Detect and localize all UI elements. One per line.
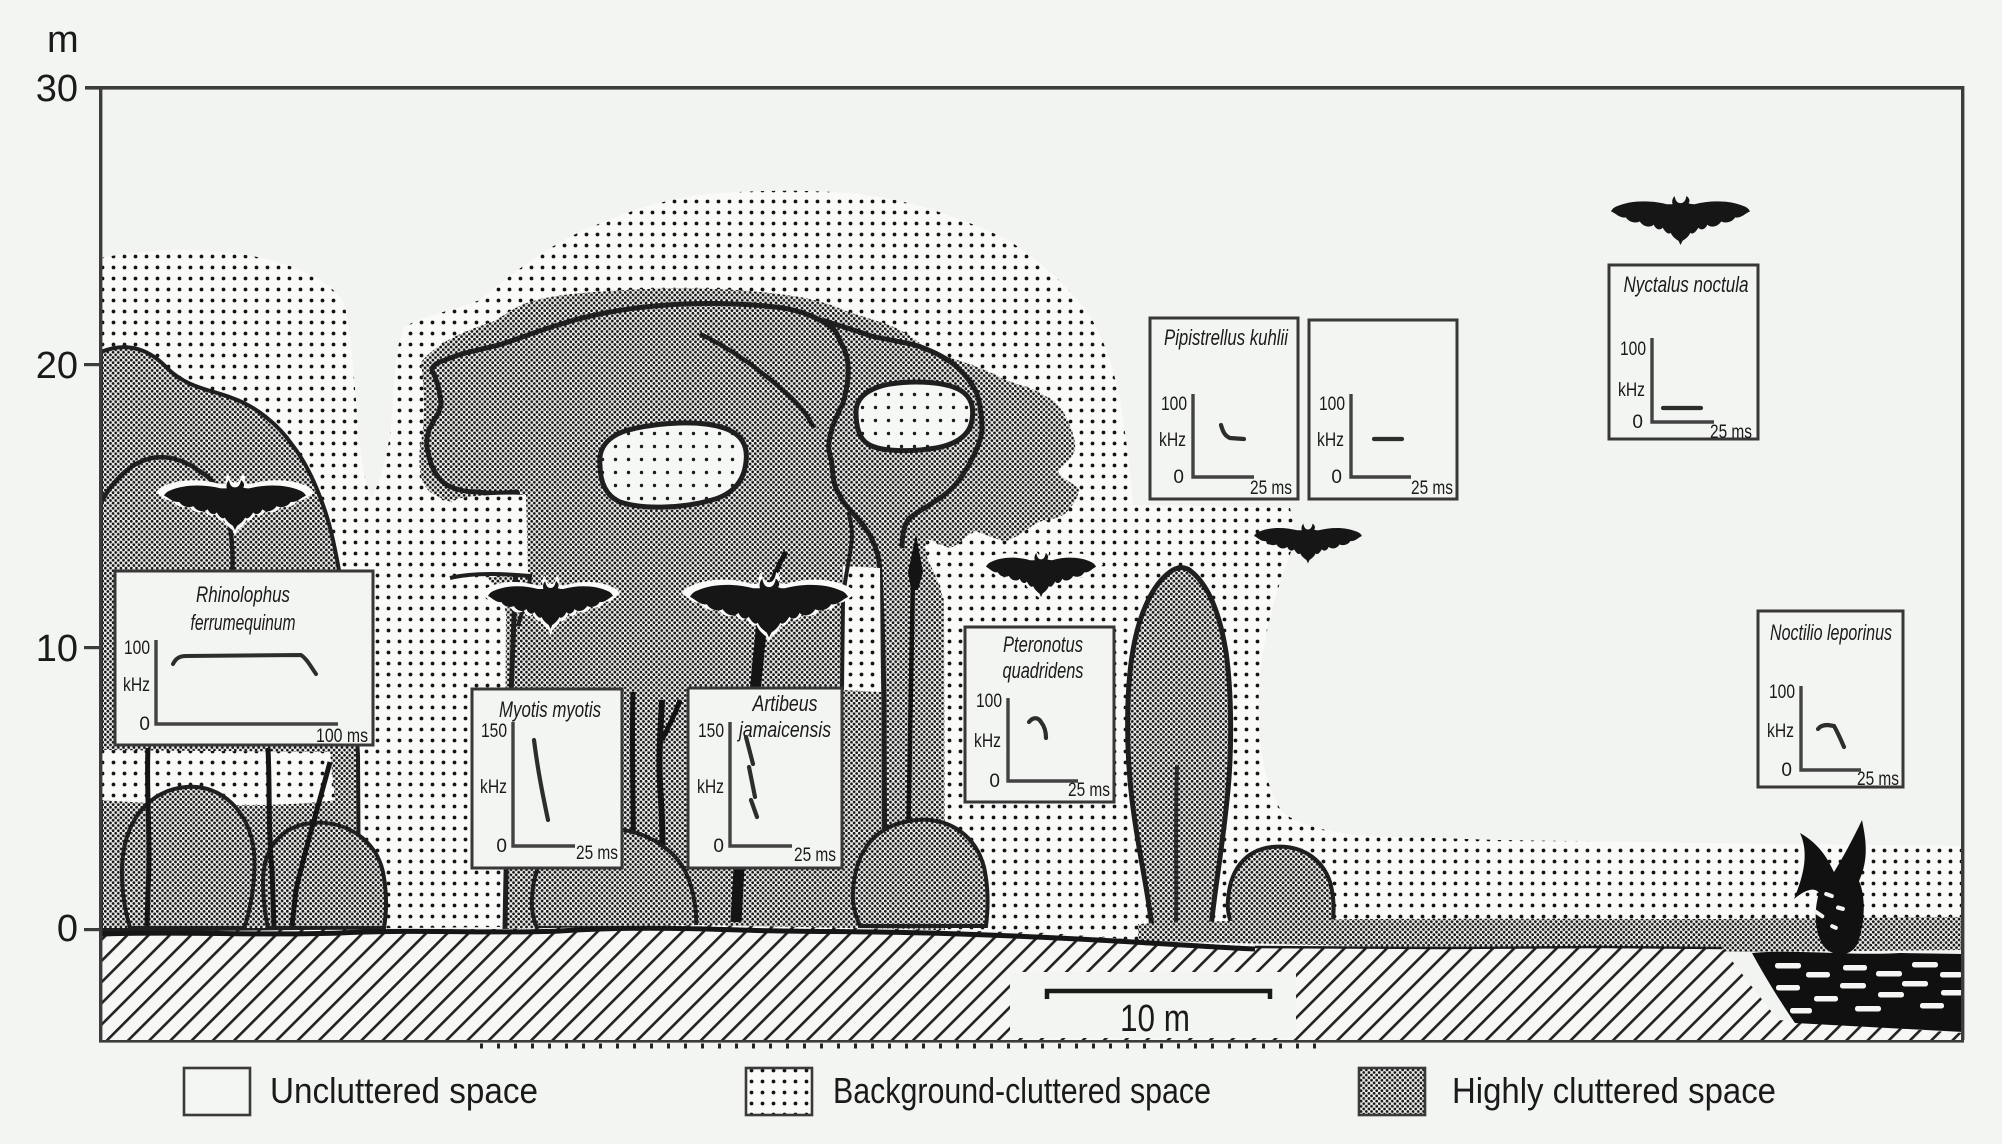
svg-text:10: 10 xyxy=(36,628,78,670)
svg-text:kHz: kHz xyxy=(697,777,724,798)
svg-text:25 ms: 25 ms xyxy=(794,845,836,866)
svg-text:25 ms: 25 ms xyxy=(1411,478,1453,499)
svg-text:100: 100 xyxy=(1161,394,1187,415)
svg-text:jamaicensis: jamaicensis xyxy=(737,717,831,742)
svg-text:kHz: kHz xyxy=(1767,721,1794,742)
svg-text:kHz: kHz xyxy=(1159,430,1186,451)
svg-text:0: 0 xyxy=(1781,760,1792,781)
svg-text:ferrumequinum: ferrumequinum xyxy=(191,610,296,635)
svg-text:100: 100 xyxy=(1769,682,1795,703)
svg-text:25 ms: 25 ms xyxy=(1250,478,1292,499)
svg-text:kHz: kHz xyxy=(123,675,150,696)
svg-text:Rhinolophus: Rhinolophus xyxy=(196,582,290,607)
svg-text:kHz: kHz xyxy=(480,777,507,798)
svg-text:Pipistrellus kuhlii: Pipistrellus kuhlii xyxy=(1164,325,1289,350)
svg-text:25 ms: 25 ms xyxy=(1857,769,1899,790)
svg-text:0: 0 xyxy=(713,836,724,857)
svg-text:100: 100 xyxy=(1319,394,1345,415)
svg-text:kHz: kHz xyxy=(1317,430,1344,451)
svg-text:150: 150 xyxy=(698,721,724,742)
svg-text:0: 0 xyxy=(57,908,78,950)
svg-text:Myotis myotis: Myotis myotis xyxy=(499,697,601,722)
svg-text:30: 30 xyxy=(36,68,78,110)
svg-text:100 ms: 100 ms xyxy=(316,726,368,747)
svg-text:0: 0 xyxy=(989,771,1000,792)
svg-text:Nyctalus noctula: Nyctalus noctula xyxy=(1624,272,1749,297)
svg-text:Artibeus: Artibeus xyxy=(751,691,818,716)
svg-text:0: 0 xyxy=(1331,467,1342,488)
svg-text:quadridens: quadridens xyxy=(1003,658,1084,683)
svg-text:kHz: kHz xyxy=(974,731,1001,752)
svg-text:100: 100 xyxy=(1620,339,1646,360)
svg-text:m: m xyxy=(47,19,79,61)
svg-text:100: 100 xyxy=(976,691,1002,712)
svg-text:100: 100 xyxy=(124,638,150,659)
svg-text:Highly cluttered space: Highly cluttered space xyxy=(1452,1070,1776,1111)
svg-text:25 ms: 25 ms xyxy=(1068,780,1110,801)
svg-text:25 ms: 25 ms xyxy=(576,843,618,864)
svg-text:Uncluttered space: Uncluttered space xyxy=(270,1070,538,1111)
svg-text:0: 0 xyxy=(139,714,150,735)
svg-text:20: 20 xyxy=(36,345,78,387)
svg-text:Background-cluttered space: Background-cluttered space xyxy=(833,1070,1211,1111)
svg-text:Pteronotus: Pteronotus xyxy=(1003,632,1083,657)
svg-text:0: 0 xyxy=(1632,412,1643,433)
svg-text:10 m: 10 m xyxy=(1120,998,1190,1040)
svg-text:Noctilio leporinus: Noctilio leporinus xyxy=(1770,620,1892,645)
svg-text:25 ms: 25 ms xyxy=(1710,422,1752,443)
svg-text:0: 0 xyxy=(1173,467,1184,488)
svg-text:150: 150 xyxy=(481,721,507,742)
svg-text:kHz: kHz xyxy=(1618,380,1645,401)
svg-text:0: 0 xyxy=(496,836,507,857)
